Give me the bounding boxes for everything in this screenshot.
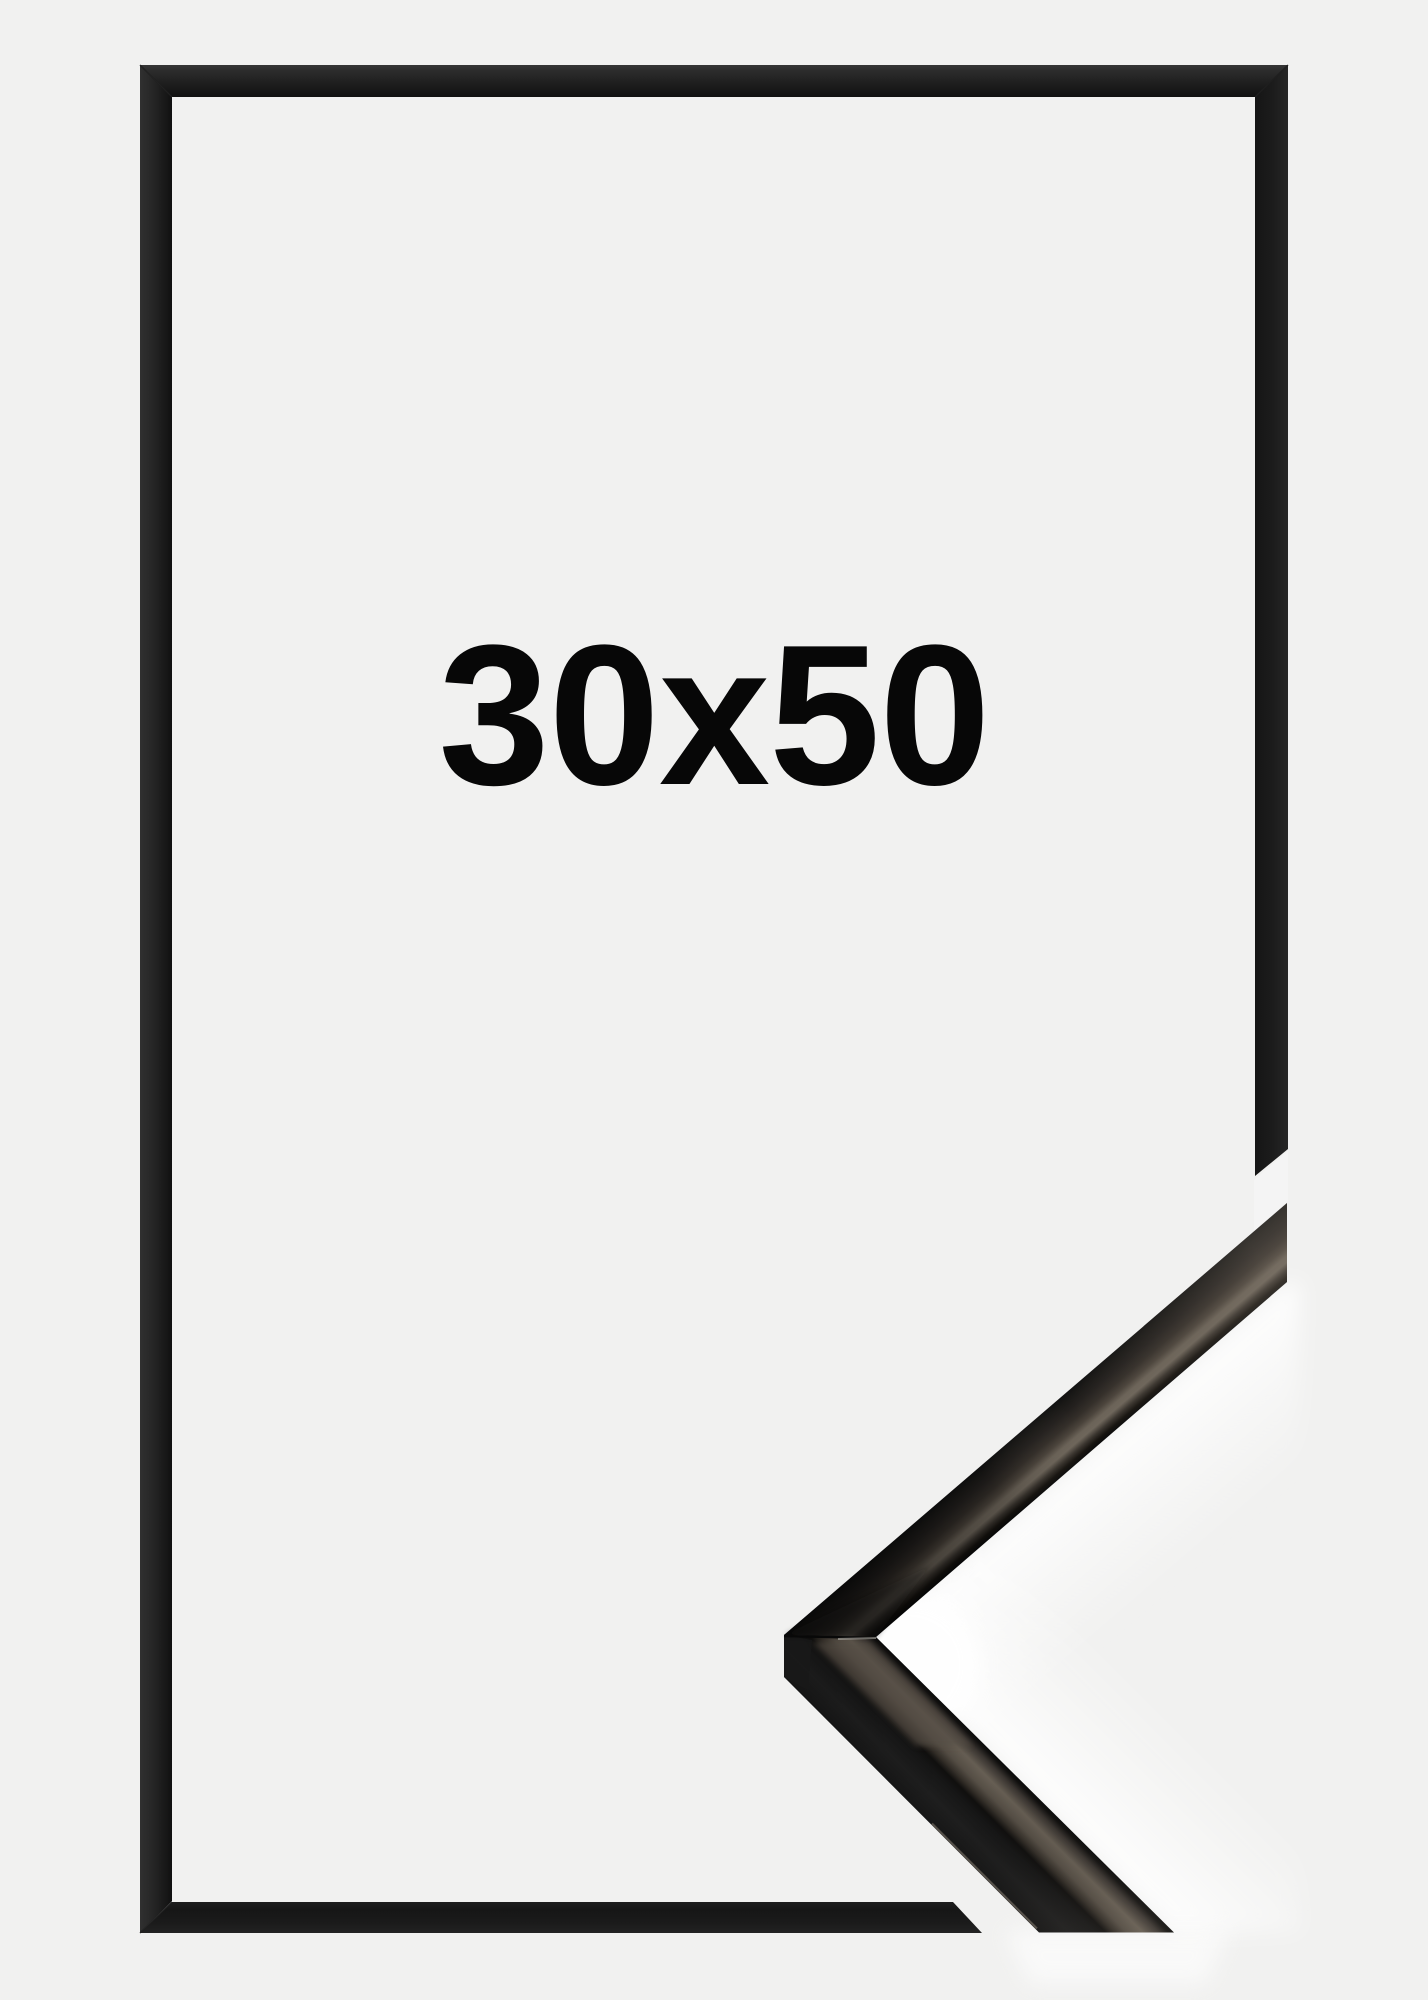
svg-text:30x50: 30x50 bbox=[438, 604, 989, 827]
